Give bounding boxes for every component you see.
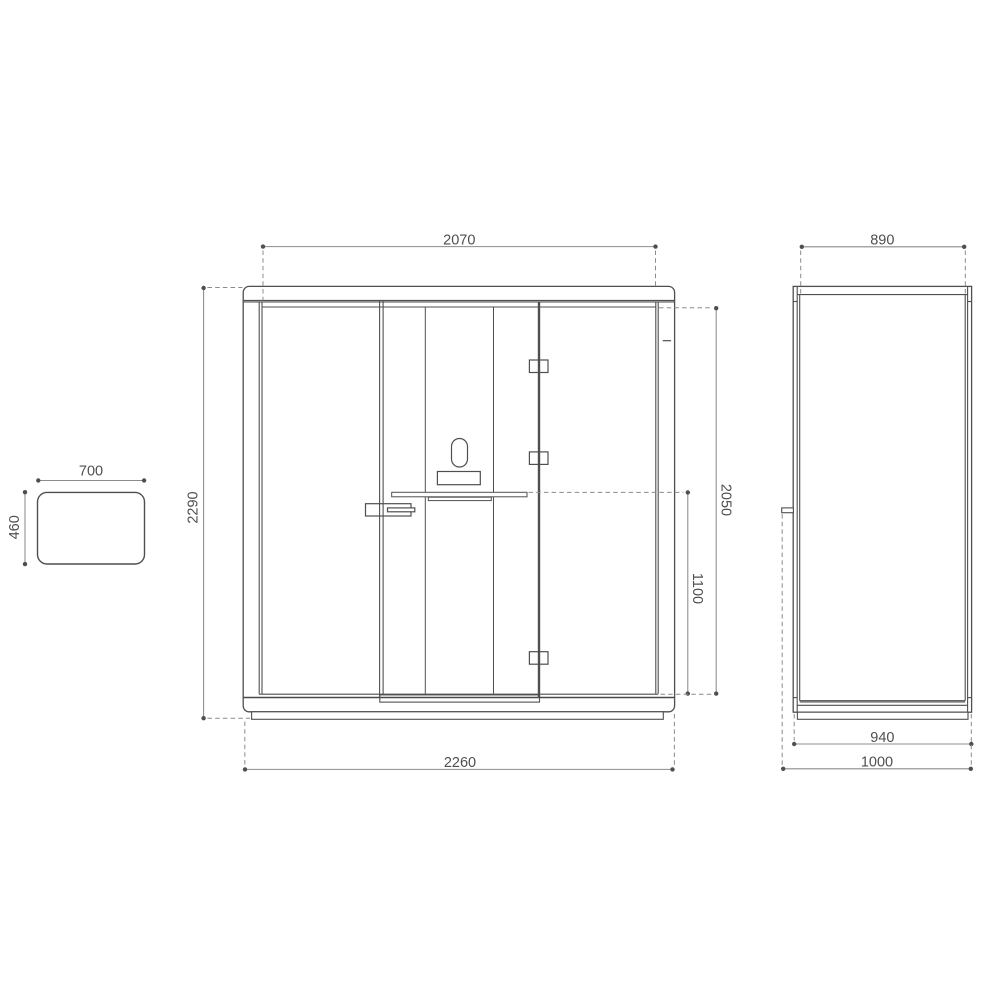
- svg-text:940: 940: [870, 730, 894, 746]
- svg-text:700: 700: [79, 463, 103, 479]
- svg-text:2260: 2260: [444, 755, 476, 771]
- svg-text:2050: 2050: [718, 484, 734, 516]
- svg-text:890: 890: [870, 233, 894, 249]
- svg-text:460: 460: [7, 515, 23, 539]
- svg-text:2070: 2070: [443, 232, 475, 248]
- svg-text:1100: 1100: [689, 573, 705, 604]
- svg-text:1000: 1000: [861, 754, 893, 770]
- svg-text:2290: 2290: [185, 491, 201, 523]
